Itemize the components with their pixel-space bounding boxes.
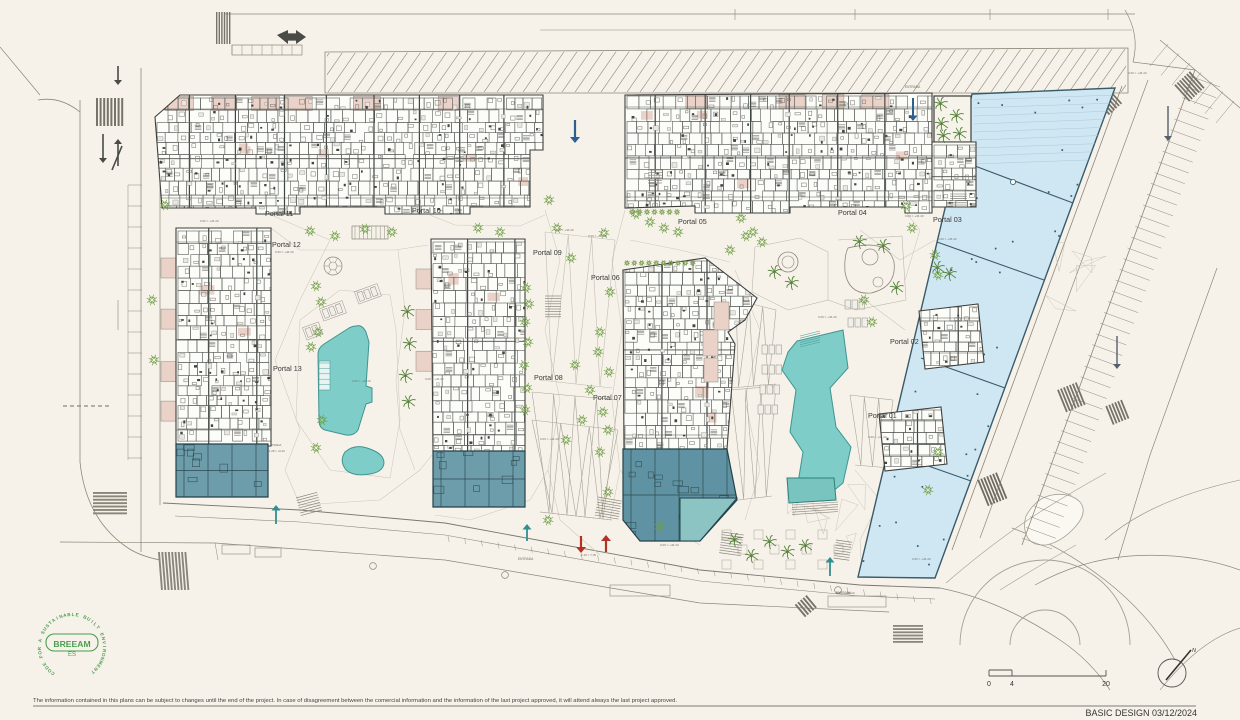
svg-text:0.00 = +46.40: 0.00 = +46.40 [660, 543, 679, 547]
svg-text:-1.28 = +6.10: -1.28 = +6.10 [268, 449, 285, 453]
svg-text:0.00 = +46.40: 0.00 = +46.40 [352, 379, 371, 383]
svg-text:20: 20 [1102, 681, 1110, 688]
svg-text:0.00 = +46.40: 0.00 = +46.40 [1128, 71, 1147, 75]
svg-text:4: 4 [1010, 681, 1014, 688]
svg-text:I: I [102, 646, 107, 647]
svg-text:Portal 03: Portal 03 [933, 215, 962, 224]
svg-text:BASIC DESIGN 03/12/2024: BASIC DESIGN 03/12/2024 [1085, 708, 1197, 718]
svg-text:Portal 12: Portal 12 [272, 240, 301, 249]
svg-text:0.00 = +46.40: 0.00 = +46.40 [836, 591, 855, 595]
svg-text:Portal 07: Portal 07 [593, 393, 622, 402]
svg-text:Portal 04: Portal 04 [838, 208, 867, 217]
svg-text:0.00 = +46.40: 0.00 = +46.40 [555, 228, 574, 232]
svg-text:0.00 = +46.40: 0.00 = +46.40 [200, 219, 219, 223]
svg-text:0: 0 [987, 681, 991, 688]
svg-text:0.00 = +46.40: 0.00 = +46.40 [912, 557, 931, 561]
svg-text:0.00 = +46.40: 0.00 = +46.40 [938, 237, 957, 241]
svg-text:Portal 10: Portal 10 [412, 206, 441, 215]
svg-text:Portal 06: Portal 06 [591, 273, 620, 282]
svg-text:BREEAM: BREEAM [53, 639, 90, 649]
svg-text:Portal 02: Portal 02 [890, 337, 919, 346]
svg-text:0.00 = +46.40: 0.00 = +46.40 [818, 315, 837, 319]
svg-text:0.00 = +46.40: 0.00 = +46.40 [275, 250, 294, 254]
svg-text:N: N [1192, 648, 1196, 654]
svg-text:Portal 09: Portal 09 [533, 248, 562, 257]
svg-text:-2.15 = 7.05: -2.15 = 7.05 [580, 553, 596, 557]
svg-text:Portal 13: Portal 13 [273, 364, 302, 373]
svg-text:0.00 = +46.40: 0.00 = +46.40 [425, 377, 444, 381]
svg-text:0.00 = +46.40: 0.00 = +46.40 [905, 214, 924, 218]
svg-text:0.00 = +46.40: 0.00 = +46.40 [868, 435, 887, 439]
svg-text:ENTRADA: ENTRADA [518, 557, 534, 561]
svg-text:Portal 05: Portal 05 [678, 217, 707, 226]
svg-text:ES: ES [68, 652, 76, 658]
svg-text:Portal 01: Portal 01 [868, 411, 897, 420]
svg-text:Portal 11: Portal 11 [265, 209, 293, 218]
svg-text:L: L [72, 612, 75, 617]
svg-text:Portal 08: Portal 08 [534, 373, 563, 382]
svg-text:0.00 = +46.40: 0.00 = +46.40 [588, 234, 607, 238]
svg-text:The information contained in t: The information contained in this plans … [33, 698, 677, 704]
svg-text:ENTRADA: ENTRADA [905, 85, 921, 89]
svg-text:0.00 = +46.40: 0.00 = +46.40 [540, 437, 559, 441]
